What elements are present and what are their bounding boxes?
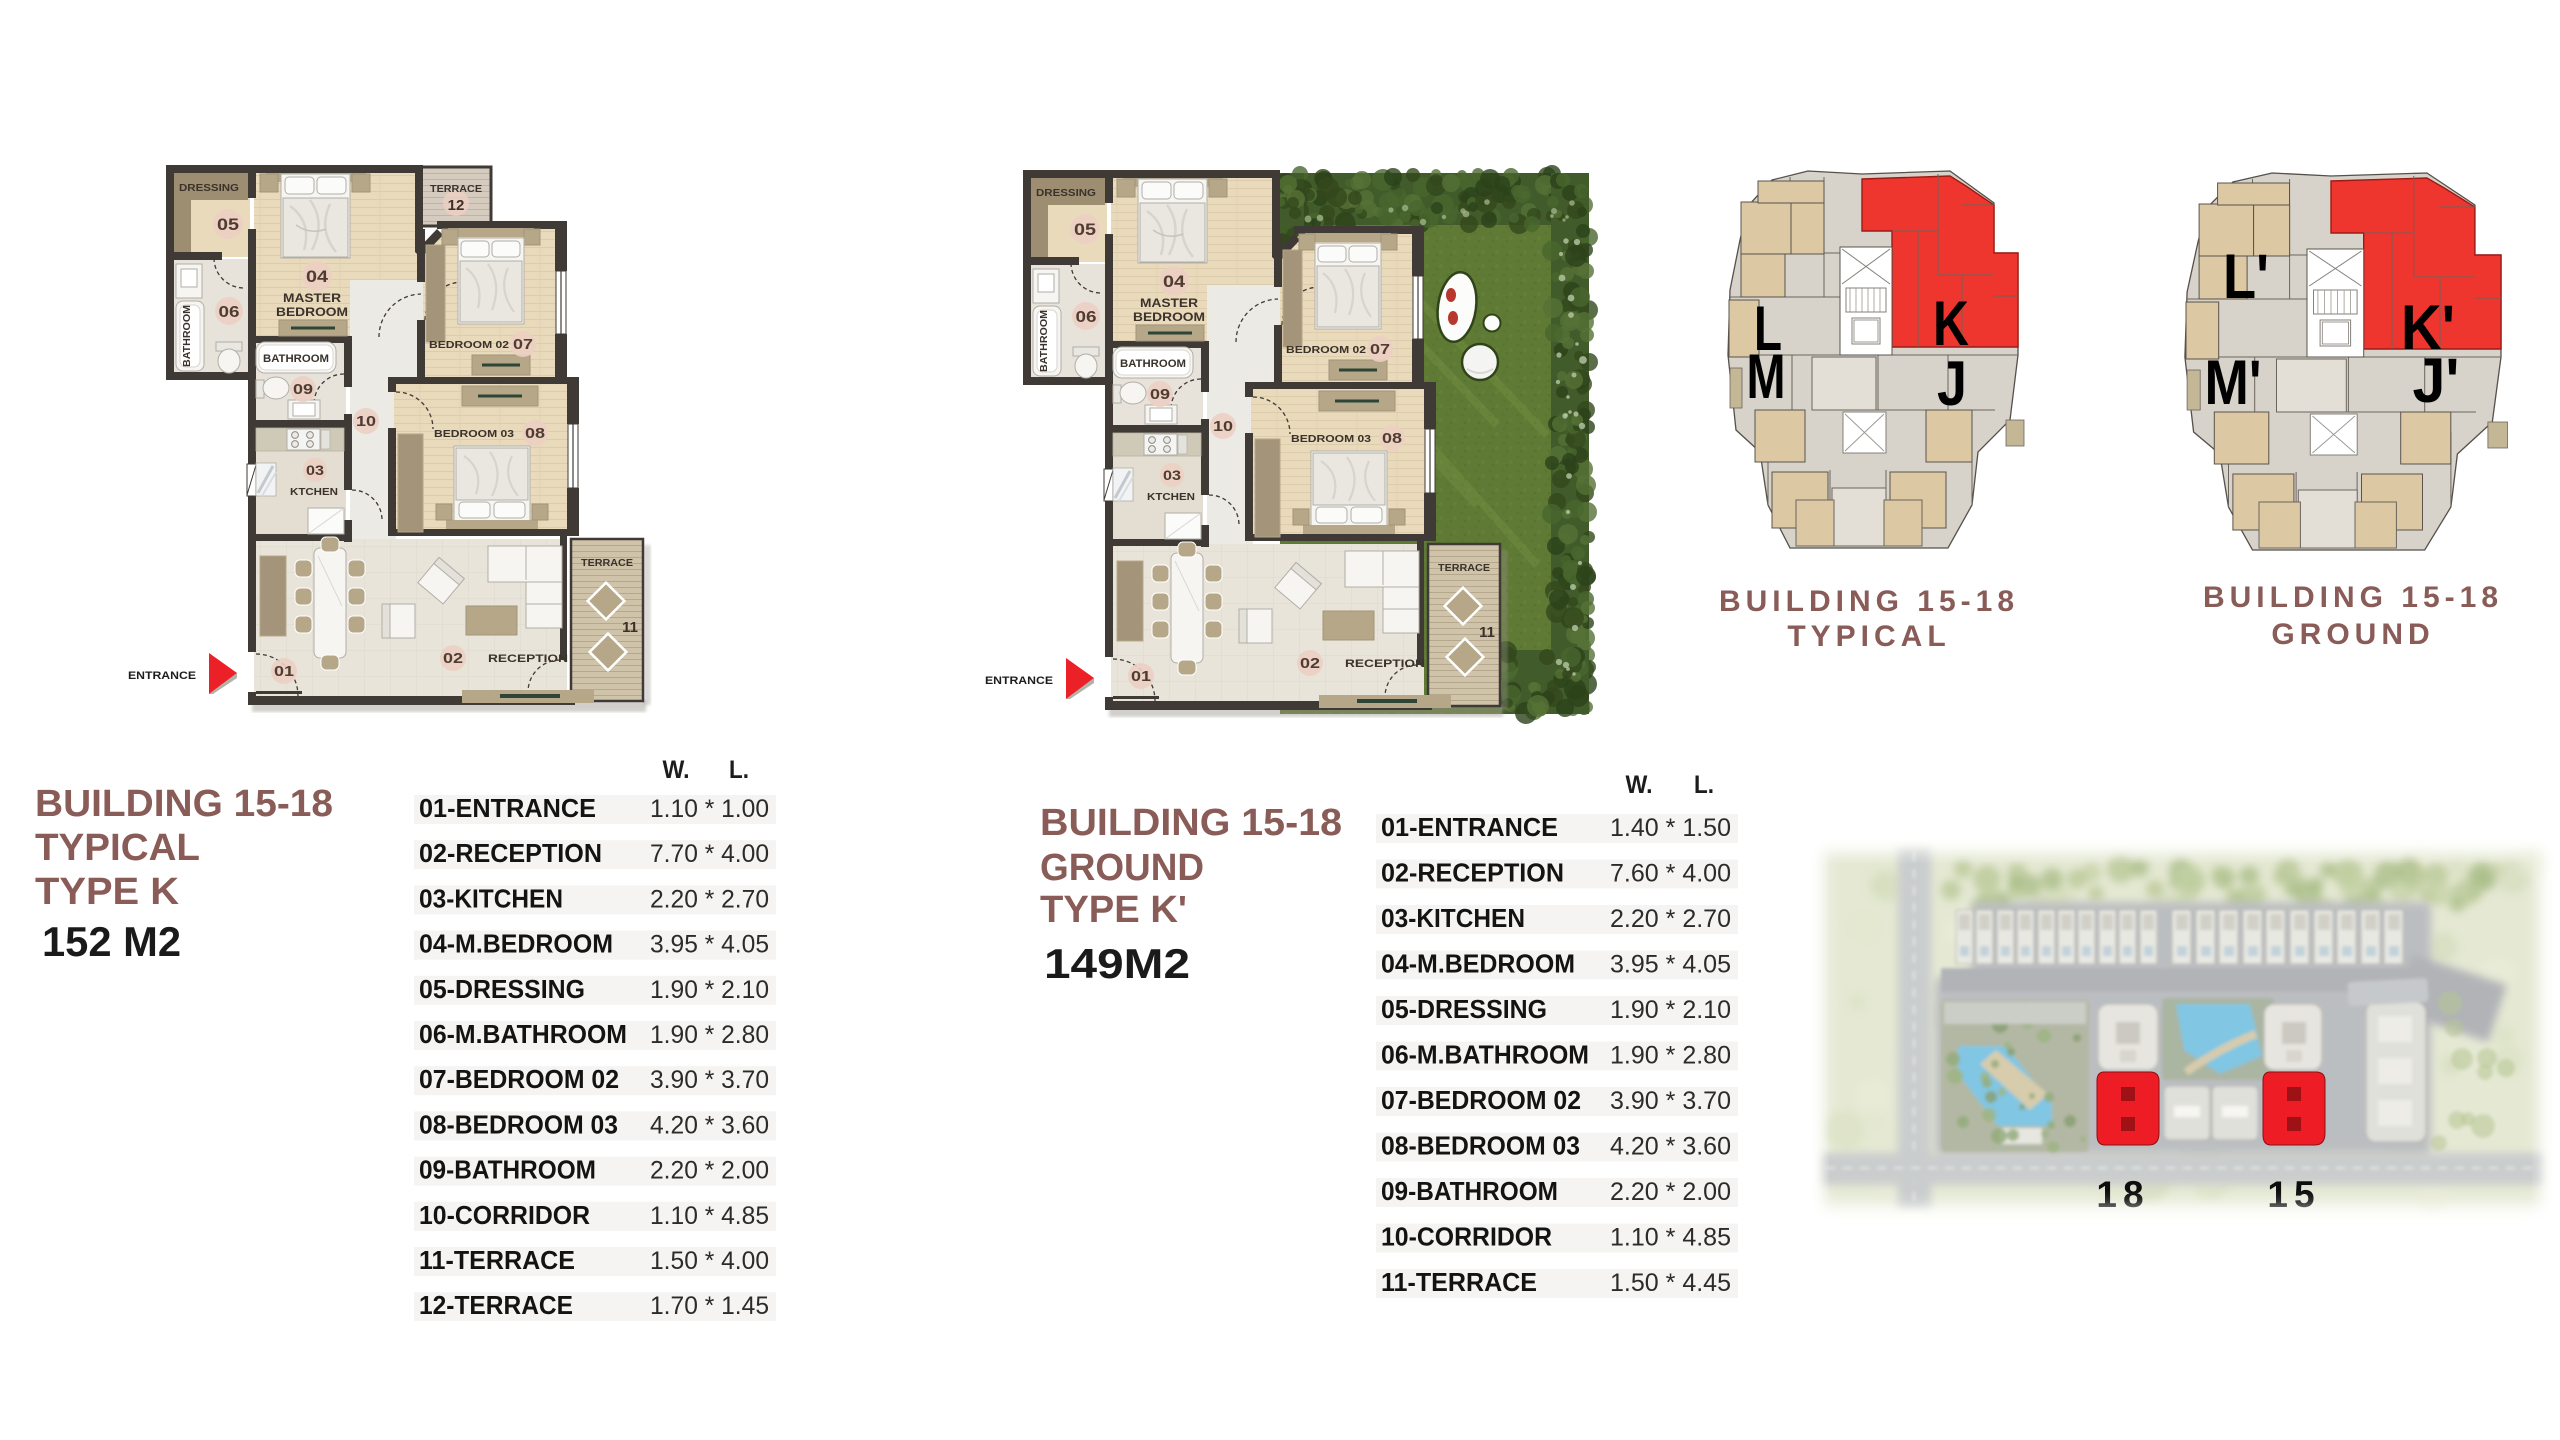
svg-text:05-DRESSING: 05-DRESSING xyxy=(419,974,585,1004)
svg-text:7.70 * 4.00: 7.70 * 4.00 xyxy=(650,840,769,868)
svg-text:12: 12 xyxy=(448,197,465,214)
svg-text:DRESSING: DRESSING xyxy=(1036,188,1096,199)
svg-text:1.90 * 2.80: 1.90 * 2.80 xyxy=(650,1021,769,1049)
svg-text:1.90 * 2.10: 1.90 * 2.10 xyxy=(650,976,769,1004)
svg-text:11-TERRACE: 11-TERRACE xyxy=(419,1245,575,1275)
svg-text:08-BEDROOM 03: 08-BEDROOM 03 xyxy=(1381,1131,1580,1161)
svg-text:2.20 * 2.70: 2.20 * 2.70 xyxy=(1610,905,1731,933)
svg-text:BATHROOM: BATHROOM xyxy=(182,305,193,367)
svg-text:12-TERRACE: 12-TERRACE xyxy=(419,1290,573,1320)
svg-text:1.10 * 4.85: 1.10 * 4.85 xyxy=(650,1202,769,1230)
svg-text:08-BEDROOM 03: 08-BEDROOM 03 xyxy=(419,1109,618,1139)
svg-text:BATHROOM: BATHROOM xyxy=(1039,310,1050,372)
svg-text:07-BEDROOM 02: 07-BEDROOM 02 xyxy=(1381,1085,1581,1115)
svg-text:TYPE K: TYPE K xyxy=(35,871,180,913)
svg-text:MASTER: MASTER xyxy=(283,291,341,305)
svg-text:L.: L. xyxy=(1694,771,1714,799)
svg-text:BEDROOM 02: BEDROOM 02 xyxy=(1286,344,1366,356)
svg-text:2.20 * 2.00: 2.20 * 2.00 xyxy=(650,1157,769,1185)
svg-text:BATHROOM: BATHROOM xyxy=(263,353,329,365)
svg-text:BEDROOM: BEDROOM xyxy=(1133,310,1205,324)
svg-text:TYPICAL: TYPICAL xyxy=(35,827,200,869)
svg-text:07: 07 xyxy=(1370,341,1390,358)
svg-text:05: 05 xyxy=(217,215,239,234)
svg-text:10-CORRIDOR: 10-CORRIDOR xyxy=(1381,1222,1552,1252)
svg-text:ENTRANCE: ENTRANCE xyxy=(985,675,1053,687)
svg-text:BUILDING 15-18: BUILDING 15-18 xyxy=(1040,802,1342,844)
svg-text:3.90 * 3.70: 3.90 * 3.70 xyxy=(1610,1087,1731,1115)
svg-text:04-M.BEDROOM: 04-M.BEDROOM xyxy=(1381,949,1575,979)
svg-text:GROUND: GROUND xyxy=(2271,618,2434,651)
svg-text:01: 01 xyxy=(274,663,294,680)
svg-text:06-M.BATHROOM: 06-M.BATHROOM xyxy=(419,1019,627,1049)
svg-text:J: J xyxy=(1937,349,1967,419)
svg-text:BUILDING 15-18: BUILDING 15-18 xyxy=(1719,585,2019,618)
svg-text:4.20 * 3.60: 4.20 * 3.60 xyxy=(1610,1133,1731,1161)
svg-text:3.90 * 3.70: 3.90 * 3.70 xyxy=(650,1066,769,1094)
svg-text:09-BATHROOM: 09-BATHROOM xyxy=(419,1155,596,1185)
svg-text:DRESSING: DRESSING xyxy=(179,183,239,194)
svg-text:03-KITCHEN: 03-KITCHEN xyxy=(419,883,563,913)
svg-text:4.20 * 3.60: 4.20 * 3.60 xyxy=(650,1111,769,1139)
svg-text:04: 04 xyxy=(306,267,329,286)
svg-text:BEDROOM 03: BEDROOM 03 xyxy=(1291,433,1371,445)
svg-text:08: 08 xyxy=(525,425,545,442)
svg-text:03: 03 xyxy=(306,462,324,478)
svg-text:11-TERRACE: 11-TERRACE xyxy=(1381,1267,1537,1297)
svg-text:M': M' xyxy=(2205,348,2262,418)
svg-text:L.: L. xyxy=(729,756,749,784)
svg-text:03-KITCHEN: 03-KITCHEN xyxy=(1381,903,1525,933)
svg-text:11: 11 xyxy=(1479,624,1495,641)
svg-text:J': J' xyxy=(2413,346,2460,416)
svg-text:10-CORRIDOR: 10-CORRIDOR xyxy=(419,1200,590,1230)
svg-text:10: 10 xyxy=(1213,418,1233,435)
svg-text:BEDROOM: BEDROOM xyxy=(276,305,348,319)
svg-text:02-RECEPTION: 02-RECEPTION xyxy=(419,838,602,868)
svg-text:KTCHEN: KTCHEN xyxy=(1147,492,1195,503)
svg-text:05: 05 xyxy=(1074,220,1096,239)
svg-text:02-RECEPTION: 02-RECEPTION xyxy=(1381,858,1564,888)
svg-text:7.60 * 4.00: 7.60 * 4.00 xyxy=(1610,860,1731,888)
svg-text:1.50 * 4.00: 1.50 * 4.00 xyxy=(650,1247,769,1275)
svg-text:1.90 * 2.80: 1.90 * 2.80 xyxy=(1610,1042,1731,1070)
svg-text:04: 04 xyxy=(1163,272,1186,291)
svg-text:1.50 * 4.45: 1.50 * 4.45 xyxy=(1610,1269,1731,1297)
svg-text:L': L' xyxy=(2223,242,2269,312)
svg-text:TERRACE: TERRACE xyxy=(581,558,633,569)
svg-text:GROUND: GROUND xyxy=(1040,847,1204,889)
svg-text:1.70 * 1.45: 1.70 * 1.45 xyxy=(650,1292,769,1320)
svg-text:3.95 * 4.05: 3.95 * 4.05 xyxy=(1610,951,1731,979)
svg-text:W.: W. xyxy=(663,756,690,784)
svg-text:01-ENTRANCE: 01-ENTRANCE xyxy=(1381,812,1558,842)
svg-text:08: 08 xyxy=(1382,430,1402,447)
svg-text:01-ENTRANCE: 01-ENTRANCE xyxy=(419,793,596,823)
svg-text:09-BATHROOM: 09-BATHROOM xyxy=(1381,1176,1558,1206)
svg-text:06-M.BATHROOM: 06-M.BATHROOM xyxy=(1381,1040,1589,1070)
svg-text:BUILDING 15-18: BUILDING 15-18 xyxy=(2203,581,2503,614)
svg-text:1.40 * 1.50: 1.40 * 1.50 xyxy=(1610,814,1731,842)
svg-text:TYPE K': TYPE K' xyxy=(1040,889,1187,931)
svg-text:149M2: 149M2 xyxy=(1044,940,1190,987)
svg-text:05-DRESSING: 05-DRESSING xyxy=(1381,994,1547,1024)
svg-text:1.90 * 2.10: 1.90 * 2.10 xyxy=(1610,996,1731,1024)
svg-text:BEDROOM 02: BEDROOM 02 xyxy=(429,339,509,351)
svg-text:BEDROOM 03: BEDROOM 03 xyxy=(434,428,514,440)
svg-text:03: 03 xyxy=(1163,467,1181,483)
svg-text:07-BEDROOM 02: 07-BEDROOM 02 xyxy=(419,1064,619,1094)
svg-text:06: 06 xyxy=(219,304,240,321)
svg-text:2.20 * 2.00: 2.20 * 2.00 xyxy=(1610,1178,1731,1206)
svg-text:M: M xyxy=(1747,342,1786,412)
svg-text:BATHROOM: BATHROOM xyxy=(1120,358,1186,370)
svg-text:1.10 * 1.00: 1.10 * 1.00 xyxy=(650,795,769,823)
svg-text:2.20 * 2.70: 2.20 * 2.70 xyxy=(650,885,769,913)
svg-text:TERRACE: TERRACE xyxy=(430,184,482,195)
svg-text:04-M.BEDROOM: 04-M.BEDROOM xyxy=(419,929,613,959)
svg-text:BUILDING 15-18: BUILDING 15-18 xyxy=(35,783,333,825)
svg-text:1.10 * 4.85: 1.10 * 4.85 xyxy=(1610,1224,1731,1252)
svg-text:11: 11 xyxy=(622,619,638,636)
svg-text:01: 01 xyxy=(1131,668,1151,685)
svg-text:RECEPTION: RECEPTION xyxy=(488,653,568,665)
svg-text:06: 06 xyxy=(1076,309,1097,326)
svg-text:02: 02 xyxy=(1300,655,1320,672)
svg-text:07: 07 xyxy=(513,336,533,353)
svg-text:TYPICAL: TYPICAL xyxy=(1787,620,1950,653)
svg-text:W.: W. xyxy=(1626,771,1653,799)
svg-text:ENTRANCE: ENTRANCE xyxy=(128,670,196,682)
svg-text:09: 09 xyxy=(1150,386,1170,403)
svg-text:09: 09 xyxy=(293,381,313,398)
svg-text:152 M2: 152 M2 xyxy=(42,918,181,965)
svg-text:02: 02 xyxy=(443,650,463,667)
svg-text:RECEPTION: RECEPTION xyxy=(1345,658,1425,670)
svg-text:TERRACE: TERRACE xyxy=(1438,563,1490,574)
svg-text:3.95 * 4.05: 3.95 * 4.05 xyxy=(650,931,769,959)
svg-text:MASTER: MASTER xyxy=(1140,296,1198,310)
svg-text:10: 10 xyxy=(356,413,376,430)
svg-text:KTCHEN: KTCHEN xyxy=(290,487,338,498)
